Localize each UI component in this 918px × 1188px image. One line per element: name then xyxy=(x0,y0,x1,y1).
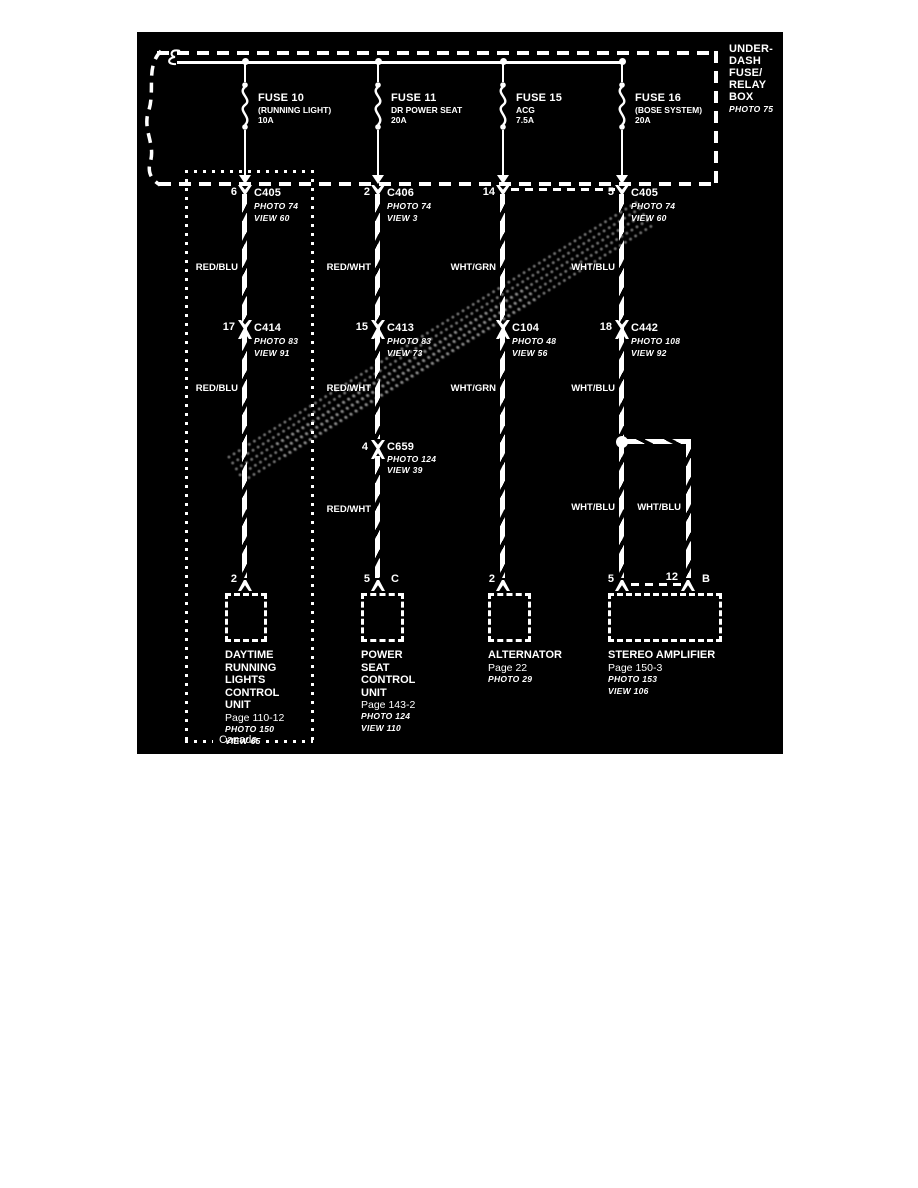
col4-conn1-name: C405 xyxy=(631,187,658,199)
component-view-ref: VIEW 110 xyxy=(361,723,415,733)
fuse-lead xyxy=(502,130,504,176)
fusebox-title-line: RELAY xyxy=(729,79,773,91)
component-name-line: UNIT xyxy=(361,687,415,700)
col4-branch-wire-label-left: WHT/BLU xyxy=(555,503,615,513)
col1-conn2-pin: 17 xyxy=(201,322,235,333)
col1-conn1-pin: 6 xyxy=(205,187,237,198)
col3-fuse-name: FUSE 15 xyxy=(516,92,562,104)
col2-bottom-pin: 5 xyxy=(334,574,370,585)
bus-hook-icon xyxy=(165,48,183,68)
fusebox-torn-left-edge xyxy=(139,47,167,189)
col4-branch-wire-label-right: WHT/BLU xyxy=(621,503,681,513)
col4-fuse-amps: 20A xyxy=(635,116,651,126)
col2-bottom-terminal: C xyxy=(391,574,399,585)
fusebox-title-line: FUSE/ xyxy=(729,67,773,79)
col1-wire-label-a: RED/BLU xyxy=(178,263,238,273)
col2-component-label: POWER SEAT CONTROL UNIT Page 143-2 PHOTO… xyxy=(361,649,415,733)
col3-conn2-view: VIEW 56 xyxy=(512,348,548,358)
col2-wire-label-a: RED/WHT xyxy=(311,263,371,273)
arrow-down-icon xyxy=(616,175,628,184)
col4-conn2-name: C442 xyxy=(631,322,658,334)
col2-conn1-photo: PHOTO 74 xyxy=(387,201,431,211)
component-view-ref: VIEW 65 xyxy=(225,736,284,746)
connector-icon xyxy=(238,580,252,591)
col4-conn2-photo: PHOTO 108 xyxy=(631,336,680,346)
branch-wire-horizontal xyxy=(626,439,691,444)
fusebox-right-edge xyxy=(714,51,718,185)
wire-red-wht xyxy=(375,456,380,578)
col2-conn1-pin: 2 xyxy=(338,187,370,198)
col3-conn1-pin: 14 xyxy=(463,187,495,198)
fusebox-title-line: UNDER- xyxy=(729,43,773,55)
component-name-line: SEAT xyxy=(361,662,415,675)
connector-icon xyxy=(615,580,629,591)
col4-conn2-view: VIEW 92 xyxy=(631,348,667,358)
component-photo-ref: PHOTO 124 xyxy=(361,711,415,721)
col4-wire-label-b: WHT/BLU xyxy=(555,384,615,394)
connector-icon xyxy=(681,580,695,591)
col2-conn3-pin: 4 xyxy=(334,442,368,453)
wire-red-blu xyxy=(242,194,247,578)
fuse-icon xyxy=(615,80,629,132)
connector-icon xyxy=(496,185,510,194)
fuse-icon xyxy=(496,80,510,132)
col3-component-label: ALTERNATOR Page 22 PHOTO 29 xyxy=(488,649,562,684)
component-name-line: RUNNING xyxy=(225,662,284,675)
component-name-line: UNIT xyxy=(225,699,284,712)
col2-wire-label-c: RED/WHT xyxy=(311,505,371,515)
component-name-line: CONTROL xyxy=(225,687,284,700)
col4-bottom-terminal: B xyxy=(702,574,710,585)
component-photo-ref: PHOTO 150 xyxy=(225,724,284,734)
col2-fuse-amps: 20A xyxy=(391,116,407,126)
col1-conn1-photo: PHOTO 74 xyxy=(254,201,298,211)
connector-icon xyxy=(496,580,510,591)
component-page-ref: Page 110-12 xyxy=(225,712,284,724)
fuse-lead xyxy=(377,130,379,176)
col2-conn1-view: VIEW 3 xyxy=(387,213,418,223)
col1-fuse-name: FUSE 10 xyxy=(258,92,304,104)
component-photo-ref: PHOTO 29 xyxy=(488,674,562,684)
col2-conn2-pin: 15 xyxy=(334,322,368,333)
col3-component-box xyxy=(488,593,531,642)
component-name-line: DAYTIME xyxy=(225,649,284,662)
col1-conn1-view: VIEW 60 xyxy=(254,213,290,223)
fusebox-top-edge xyxy=(157,51,717,55)
col2-conn1-name: C406 xyxy=(387,187,414,199)
connector-icon xyxy=(615,185,629,194)
fuse-lead xyxy=(244,130,246,176)
col3-bottom-pin: 2 xyxy=(459,574,495,585)
component-name-line: CONTROL xyxy=(361,674,415,687)
col1-conn2-view: VIEW 91 xyxy=(254,348,290,358)
connector-icon xyxy=(238,185,252,194)
col4-fuse-name: FUSE 16 xyxy=(635,92,681,104)
connector-icon xyxy=(371,440,385,449)
component-page-ref: Page 22 xyxy=(488,662,562,674)
component-view-ref: VIEW 106 xyxy=(608,686,715,696)
col2-conn3-photo: PHOTO 124 xyxy=(387,454,436,464)
col1-wire-label-b: RED/BLU xyxy=(178,384,238,394)
wire-wht-grn xyxy=(500,194,505,578)
branch-wire-vertical xyxy=(686,439,691,578)
fusebox-photo-ref: PHOTO 75 xyxy=(729,104,773,114)
component-page-ref: Page 150-3 xyxy=(608,662,715,674)
component-page-ref: Page 143-2 xyxy=(361,699,415,711)
canada-box-right xyxy=(311,170,314,742)
fuse-icon xyxy=(371,80,385,132)
scanned-page: UNDER- DASH FUSE/ RELAY BOX PHOTO 75 Can… xyxy=(0,0,918,1188)
col2-conn3-name: C659 xyxy=(387,441,414,453)
wiring-diagram: UNDER- DASH FUSE/ RELAY BOX PHOTO 75 Can… xyxy=(137,32,783,754)
col1-fuse-amps: 10A xyxy=(258,116,274,126)
canada-box-top xyxy=(185,170,313,173)
arrow-down-icon xyxy=(372,175,384,184)
component-name-line: STEREO AMPLIFIER xyxy=(608,649,715,662)
arrow-down-icon xyxy=(239,175,251,184)
col3-conn2-photo: PHOTO 48 xyxy=(512,336,556,346)
component-photo-ref: PHOTO 153 xyxy=(608,674,715,684)
shared-connector-dash-line xyxy=(631,583,681,586)
col3-wire-label-a: WHT/GRN xyxy=(436,263,496,273)
col3-fuse-amps: 7.5A xyxy=(516,116,534,126)
col1-conn2-name: C414 xyxy=(254,322,281,334)
connector-icon xyxy=(371,580,385,591)
connector-icon xyxy=(371,185,385,194)
col1-bottom-pin: 2 xyxy=(201,574,237,585)
canada-box-left xyxy=(185,170,188,742)
col2-fuse-name: FUSE 11 xyxy=(391,92,436,104)
fusebox-title-line: DASH xyxy=(729,55,773,67)
fusebox-title-line: BOX xyxy=(729,91,773,103)
col1-conn2-photo: PHOTO 83 xyxy=(254,336,298,346)
col4-conn1-pin: 5 xyxy=(582,187,614,198)
component-name-line: POWER xyxy=(361,649,415,662)
col4-bottom-pin2: 12 xyxy=(642,572,678,583)
fuse-lead xyxy=(621,130,623,176)
component-name-line: LIGHTS xyxy=(225,674,284,687)
fusebox-title: UNDER- DASH FUSE/ RELAY BOX PHOTO 75 xyxy=(729,43,773,114)
col1-component-box xyxy=(225,593,267,642)
col2-conn3-view: VIEW 39 xyxy=(387,465,423,475)
fuse-icon xyxy=(238,80,252,132)
col4-component-label: STEREO AMPLIFIER Page 150-3 PHOTO 153 VI… xyxy=(608,649,715,696)
col4-conn2-pin: 18 xyxy=(578,322,612,333)
col3-conn2-name: C104 xyxy=(512,322,539,334)
col1-component-label: DAYTIME RUNNING LIGHTS CONTROL UNIT Page… xyxy=(225,649,284,746)
arrow-down-icon xyxy=(497,175,509,184)
col2-component-box xyxy=(361,593,404,642)
wire-wht-blu xyxy=(619,194,624,578)
col4-bottom-pin: 5 xyxy=(578,574,614,585)
col2-conn2-name: C413 xyxy=(387,322,414,334)
col3-wire-label-b: WHT/GRN xyxy=(436,384,496,394)
col1-conn1-name: C405 xyxy=(254,187,281,199)
col4-component-box xyxy=(608,593,722,642)
component-name-line: ALTERNATOR xyxy=(488,649,562,662)
